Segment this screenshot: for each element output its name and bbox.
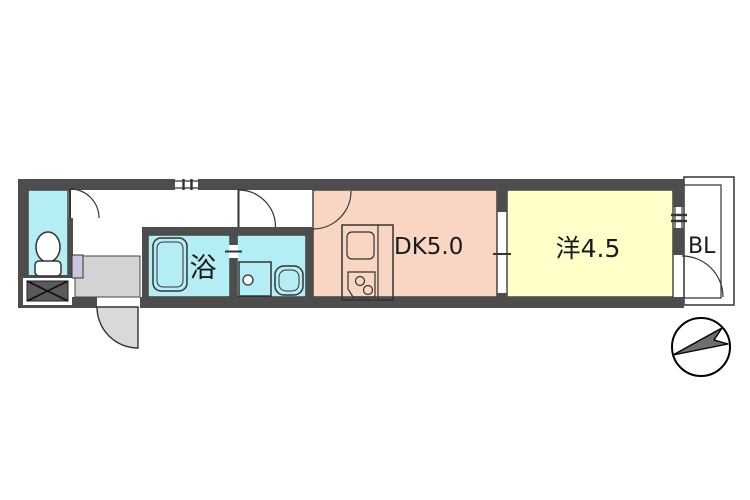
- entrance-door-swing: [97, 307, 138, 348]
- entrance-floor: [75, 256, 140, 297]
- wall-bath-wash-divider: [230, 235, 237, 297]
- shoe-box-icon: [23, 278, 72, 305]
- wall-stub-dk-top: [497, 190, 507, 212]
- western-room-label: 洋4.5: [556, 234, 621, 263]
- window-top: [175, 179, 198, 190]
- wall-wash-dk: [306, 235, 313, 297]
- wall-top-right: [198, 179, 684, 190]
- wall-bathblock-top: [142, 227, 313, 235]
- wall-bottom-right: [140, 297, 684, 308]
- toilet-icon: [35, 232, 61, 276]
- dk-label: DK5.0: [394, 234, 463, 260]
- compass-icon: [672, 318, 730, 376]
- entrance-shelf: [72, 255, 83, 278]
- bath-label: 浴: [190, 253, 217, 284]
- wall-top-left: [18, 179, 175, 190]
- wall-bathblock-left: [142, 235, 148, 297]
- toilet-door: [70, 189, 99, 218]
- corridor-door: [239, 190, 276, 227]
- floorplan-image: 浴 DK5.0 洋4.5 BL: [0, 0, 750, 500]
- wall-stub-dk-bottom: [497, 293, 507, 308]
- wall-right-mid: [673, 228, 684, 255]
- wall-right-upper: [673, 190, 684, 207]
- floorplan-svg: 浴 DK5.0 洋4.5 BL: [0, 0, 750, 500]
- balcony-label: BL: [688, 234, 716, 259]
